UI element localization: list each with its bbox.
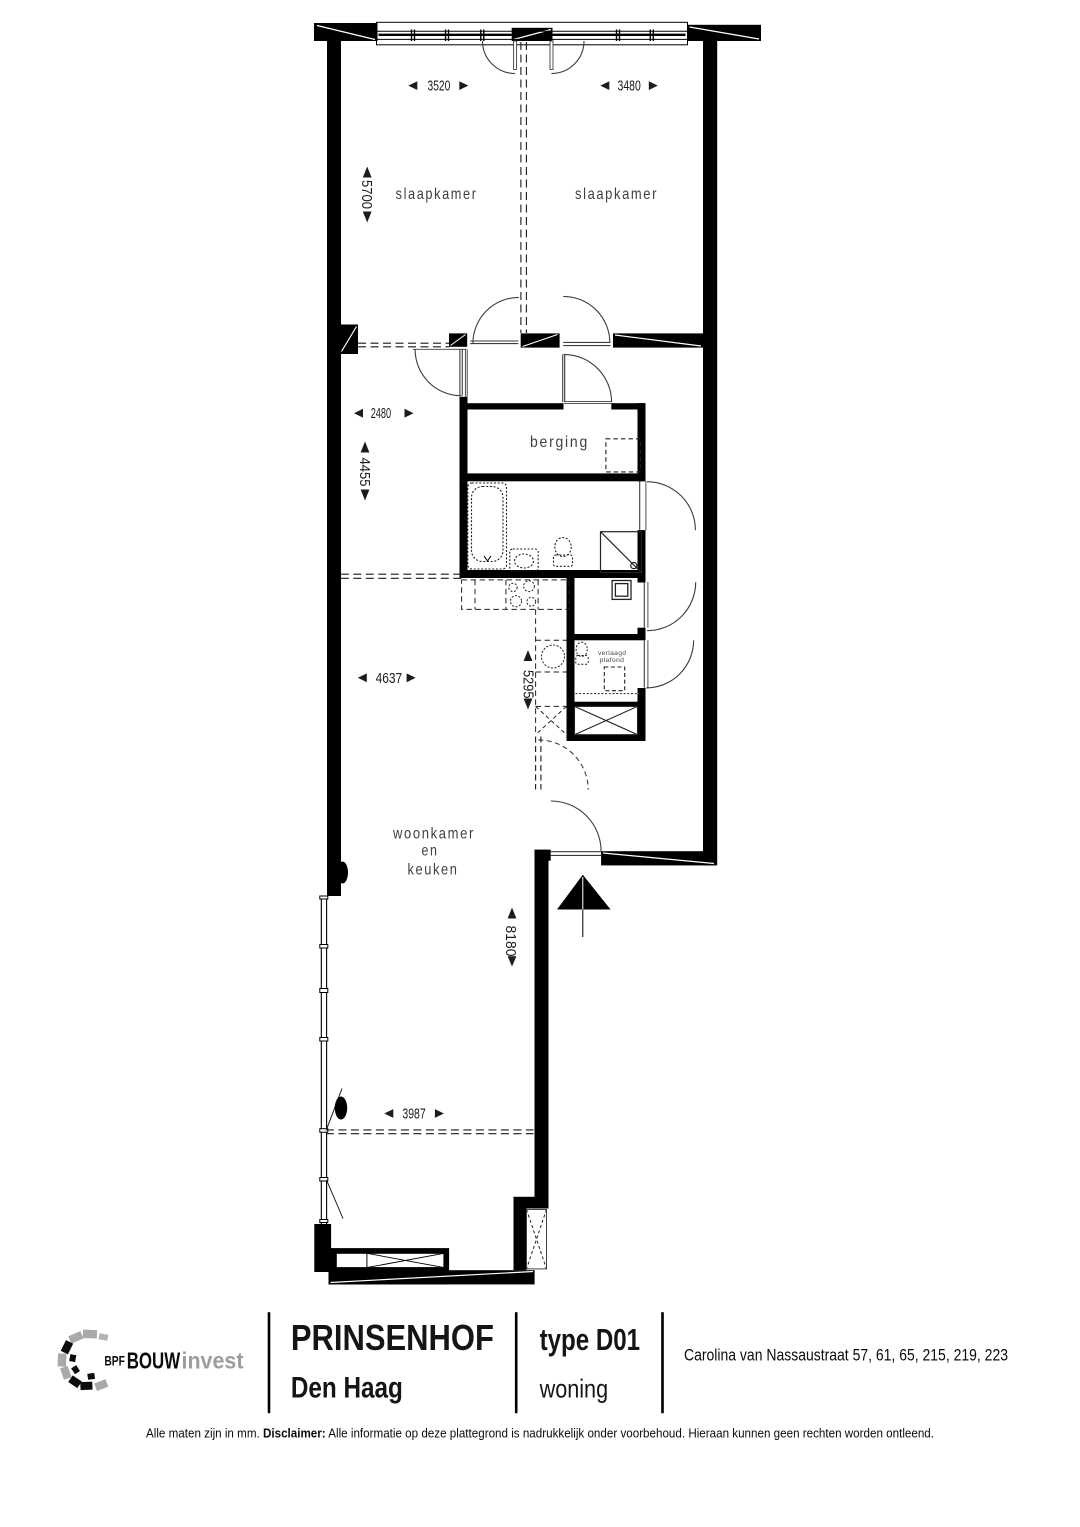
svg-text:5295: 5295: [519, 670, 535, 699]
svg-text:BPF: BPF: [104, 1352, 125, 1368]
svg-text:BOUW: BOUW: [127, 1347, 181, 1373]
svg-text:3520: 3520: [428, 79, 451, 95]
svg-text:4637: 4637: [376, 671, 403, 687]
svg-text:verlaagd: verlaagd: [598, 650, 627, 657]
svg-text:3987: 3987: [402, 1107, 425, 1123]
svg-text:berging: berging: [530, 434, 589, 451]
svg-text:invest: invest: [182, 1347, 244, 1373]
svg-text:4455: 4455: [356, 458, 372, 487]
svg-text:Den Haag: Den Haag: [291, 1372, 403, 1405]
svg-text:8180: 8180: [502, 926, 518, 957]
svg-text:PRINSENHOF: PRINSENHOF: [291, 1317, 494, 1358]
svg-text:plafond: plafond: [600, 657, 625, 664]
svg-text:woning: woning: [539, 1374, 608, 1404]
svg-text:slaapkamer: slaapkamer: [575, 186, 658, 203]
svg-text:Alle maten zijn in mm. Disclai: Alle maten zijn in mm. Disclaimer: Alle …: [146, 1426, 934, 1441]
svg-text:Carolina van Nassaustraat 57,: Carolina van Nassaustraat 57, 61, 65, 21…: [684, 1346, 1008, 1365]
svg-text:3480: 3480: [618, 79, 641, 95]
svg-text:type D01: type D01: [540, 1322, 641, 1357]
svg-text:en: en: [422, 843, 439, 860]
svg-text:keuken: keuken: [408, 862, 459, 879]
svg-text:slaapkamer: slaapkamer: [396, 186, 478, 203]
svg-text:woonkamer: woonkamer: [392, 826, 475, 843]
svg-text:2480: 2480: [371, 406, 391, 422]
svg-text:5700: 5700: [358, 180, 374, 209]
